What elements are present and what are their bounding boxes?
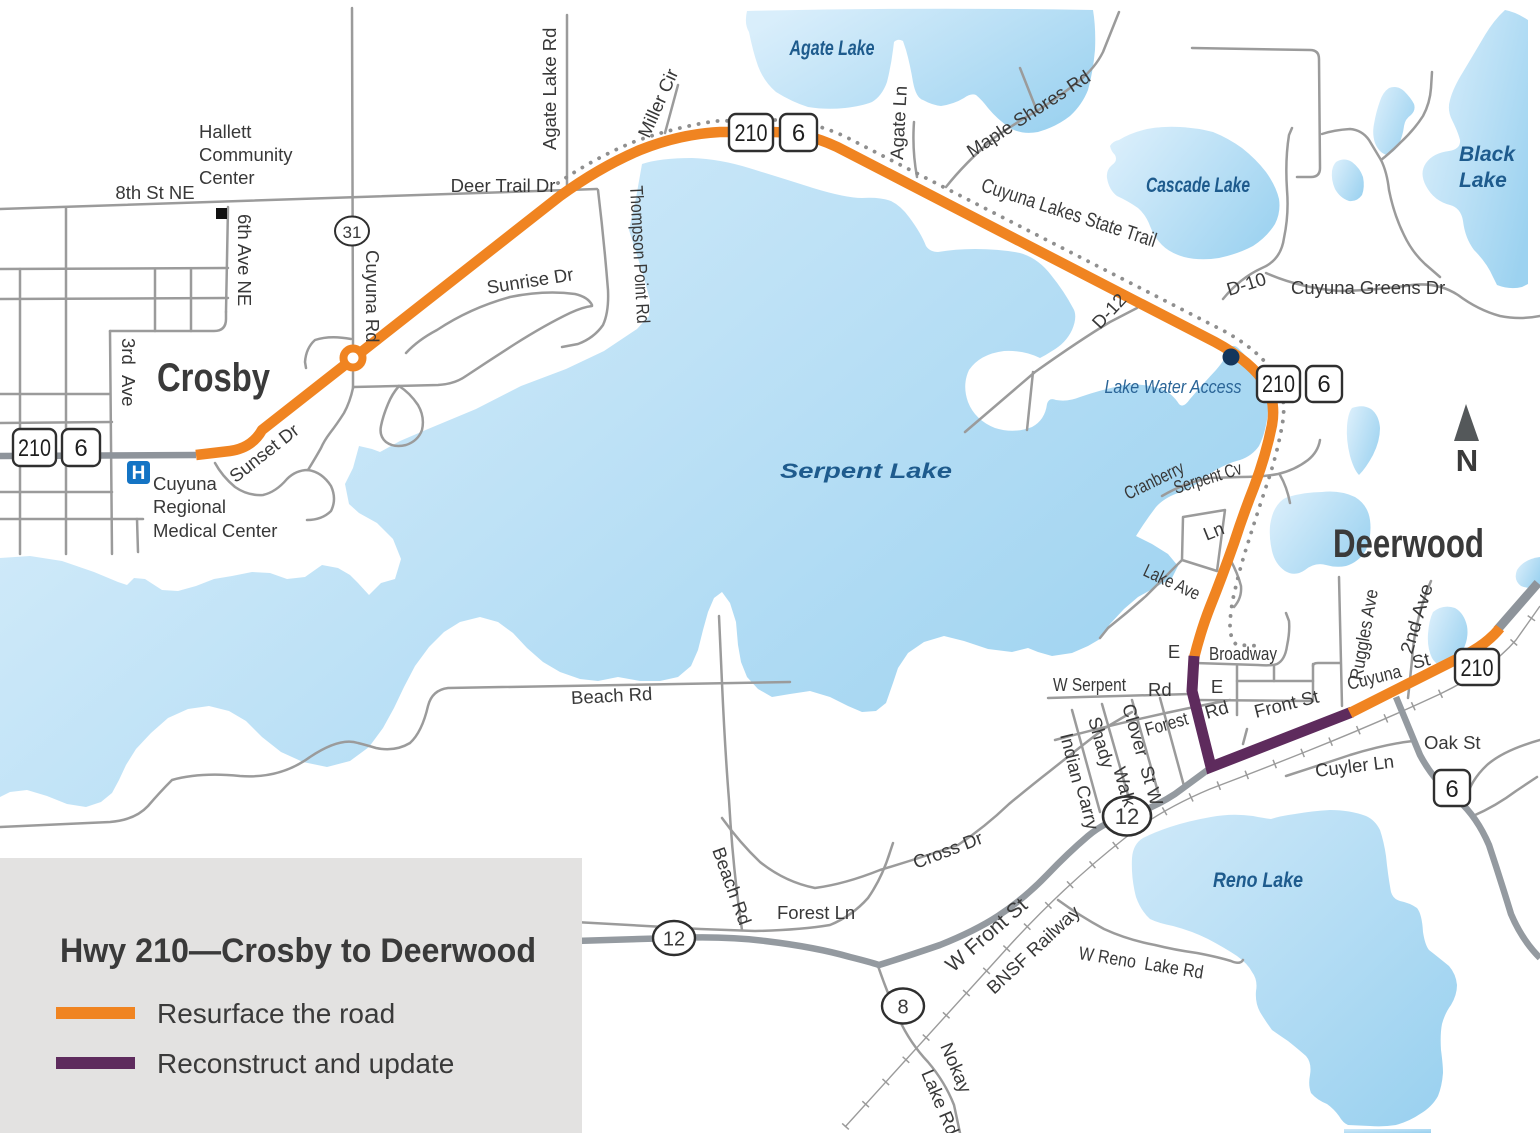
svg-text:Center: Center — [199, 167, 255, 188]
svg-text:Lake Water Access: Lake Water Access — [1105, 376, 1242, 397]
svg-text:8: 8 — [897, 997, 908, 1019]
svg-text:W Serpent: W Serpent — [1053, 674, 1126, 695]
svg-text:210: 210 — [1461, 655, 1494, 682]
svg-text:6: 6 — [1445, 776, 1458, 803]
svg-text:Reconstruct and update: Reconstruct and update — [157, 1048, 454, 1079]
svg-text:Serpent Lake: Serpent Lake — [780, 460, 952, 483]
svg-text:Broadway: Broadway — [1209, 643, 1278, 664]
svg-text:6th Ave NE: 6th Ave NE — [234, 214, 255, 306]
svg-text:210: 210 — [18, 435, 51, 462]
svg-text:Hwy 210—Crosby to Deerwood: Hwy 210—Crosby to Deerwood — [60, 932, 536, 970]
svg-text:H: H — [132, 463, 146, 484]
svg-text:Black: Black — [1459, 143, 1516, 166]
svg-text:Beach Rd: Beach Rd — [571, 683, 653, 708]
svg-text:8th St NE: 8th St NE — [115, 182, 194, 203]
svg-text:Rd: Rd — [1148, 679, 1172, 700]
svg-text:Hallett: Hallett — [199, 121, 251, 142]
svg-text:Regional: Regional — [153, 496, 226, 517]
svg-text:12: 12 — [1115, 804, 1139, 829]
svg-text:Oak St: Oak St — [1424, 732, 1481, 753]
svg-text:210: 210 — [1262, 371, 1295, 398]
svg-text:E: E — [1211, 676, 1223, 697]
svg-text:Cuyuna Rd: Cuyuna Rd — [362, 250, 383, 343]
svg-text:Cuyuna Greens Dr: Cuyuna Greens Dr — [1291, 277, 1445, 298]
svg-text:Cuyuna: Cuyuna — [153, 473, 217, 494]
svg-text:Agate Lake Rd: Agate Lake Rd — [539, 28, 560, 150]
svg-text:Agate Lake: Agate Lake — [789, 37, 875, 60]
svg-text:Resurface the road: Resurface the road — [157, 998, 395, 1029]
svg-text:N: N — [1456, 443, 1478, 478]
svg-text:12: 12 — [663, 929, 685, 951]
svg-text:Community: Community — [199, 144, 293, 165]
svg-text:Deer Trail Dr: Deer Trail Dr — [451, 175, 556, 196]
svg-text:Cascade Lake: Cascade Lake — [1146, 174, 1250, 197]
svg-text:Medical Center: Medical Center — [153, 520, 277, 541]
svg-text:210: 210 — [735, 120, 768, 147]
svg-text:31: 31 — [343, 223, 362, 242]
svg-text:6: 6 — [1317, 371, 1330, 398]
svg-text:Crosby: Crosby — [157, 356, 271, 400]
svg-text:Deerwood: Deerwood — [1333, 522, 1484, 566]
svg-text:6: 6 — [792, 120, 805, 147]
svg-text:E: E — [1168, 641, 1180, 662]
svg-text:Reno Lake: Reno Lake — [1213, 869, 1303, 892]
svg-text:Agate Ln: Agate Ln — [886, 85, 911, 160]
svg-text:Lake: Lake — [1459, 169, 1507, 192]
svg-text:3rd Ave: 3rd Ave — [118, 338, 139, 407]
svg-text:6: 6 — [74, 435, 87, 462]
svg-text:Forest Ln: Forest Ln — [777, 902, 855, 923]
